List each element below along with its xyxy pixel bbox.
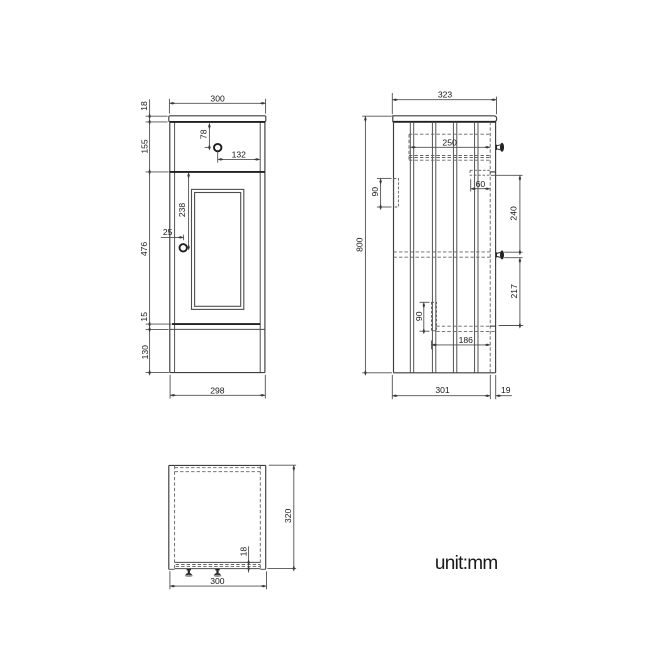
svg-text:238: 238 bbox=[177, 203, 187, 218]
svg-text:15: 15 bbox=[139, 312, 149, 322]
svg-text:18: 18 bbox=[139, 101, 149, 111]
svg-text:250: 250 bbox=[442, 137, 457, 147]
svg-text:18: 18 bbox=[238, 547, 248, 557]
svg-text:78: 78 bbox=[199, 129, 209, 139]
svg-text:90: 90 bbox=[414, 311, 424, 321]
svg-text:800: 800 bbox=[355, 237, 365, 252]
svg-text:25: 25 bbox=[163, 227, 173, 237]
svg-text:217: 217 bbox=[509, 284, 519, 299]
svg-text:186: 186 bbox=[459, 335, 474, 345]
svg-text:240: 240 bbox=[509, 206, 519, 221]
svg-text:90: 90 bbox=[370, 187, 380, 197]
svg-text:19: 19 bbox=[501, 385, 511, 395]
svg-text:60: 60 bbox=[476, 179, 486, 189]
svg-text:300: 300 bbox=[210, 576, 225, 586]
svg-text:298: 298 bbox=[210, 385, 225, 395]
svg-text:301: 301 bbox=[435, 385, 450, 395]
svg-text:476: 476 bbox=[139, 242, 149, 257]
svg-text:132: 132 bbox=[232, 150, 247, 160]
svg-text:155: 155 bbox=[139, 139, 149, 154]
svg-text:320: 320 bbox=[283, 509, 293, 524]
svg-text:unit:mm: unit:mm bbox=[435, 553, 498, 574]
svg-text:130: 130 bbox=[140, 345, 150, 360]
svg-text:323: 323 bbox=[438, 89, 453, 99]
svg-text:300: 300 bbox=[210, 94, 225, 104]
